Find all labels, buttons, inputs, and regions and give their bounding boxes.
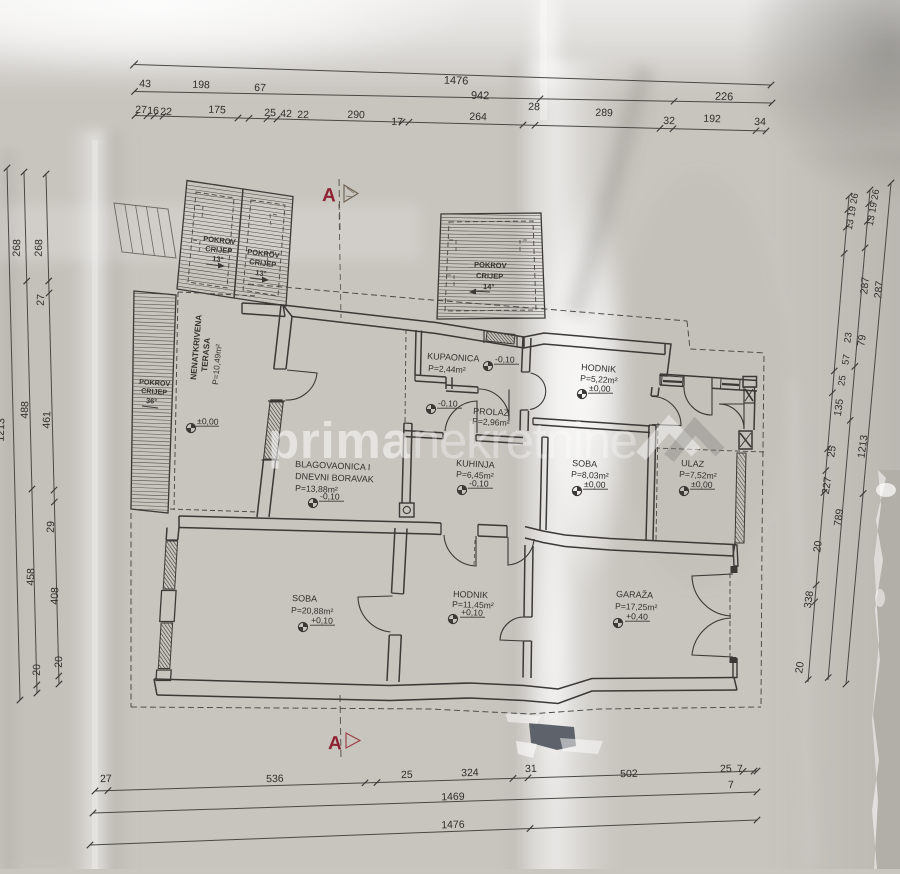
svg-text:-0,10: -0,10	[438, 398, 458, 409]
svg-text:227: 227	[820, 476, 834, 495]
svg-text:287: 287	[858, 276, 872, 295]
svg-text:287: 287	[872, 280, 886, 299]
svg-text:1469: 1469	[441, 791, 465, 804]
svg-text:7: 7	[737, 763, 743, 775]
svg-text:43: 43	[139, 78, 151, 90]
svg-text:1476: 1476	[444, 75, 469, 88]
svg-text:135: 135	[832, 398, 846, 417]
svg-text:324: 324	[461, 767, 479, 780]
svg-text:175: 175	[208, 104, 226, 117]
svg-text:7: 7	[728, 779, 734, 791]
svg-text:±0,00: ±0,00	[584, 479, 606, 490]
svg-text:ULAZ: ULAZ	[681, 458, 705, 469]
svg-text:27: 27	[100, 773, 112, 785]
svg-text:192: 192	[703, 113, 721, 126]
svg-text:P=2,44m²: P=2,44m²	[428, 363, 466, 375]
svg-text:57: 57	[840, 354, 852, 366]
svg-text:±0,00: ±0,00	[691, 479, 713, 490]
svg-text:20: 20	[811, 540, 825, 553]
svg-text:289: 289	[595, 107, 613, 120]
svg-text:25: 25	[264, 107, 276, 119]
svg-text:-0,10: -0,10	[495, 354, 515, 365]
svg-text:SOBA: SOBA	[292, 593, 317, 604]
svg-text:1476: 1476	[441, 819, 465, 832]
svg-text:408: 408	[49, 587, 62, 605]
svg-text:+0,40: +0,40	[626, 611, 648, 622]
svg-text:25: 25	[825, 445, 839, 458]
svg-text:14°: 14°	[483, 282, 495, 291]
svg-text:13°: 13°	[212, 254, 224, 264]
svg-text:-0,10: -0,10	[320, 491, 340, 502]
svg-text:31: 31	[525, 763, 537, 775]
svg-text:13°: 13°	[255, 268, 267, 278]
svg-text:942: 942	[471, 90, 490, 103]
svg-text:789: 789	[832, 508, 846, 527]
svg-text:502: 502	[620, 768, 638, 781]
svg-text:338: 338	[802, 590, 816, 609]
svg-text:+0,10: +0,10	[461, 607, 483, 618]
svg-text:+0,10: +0,10	[311, 615, 333, 626]
svg-text:25: 25	[401, 769, 413, 781]
svg-text:42: 42	[280, 108, 292, 120]
svg-text:16: 16	[147, 105, 159, 117]
svg-text:GARAŽA: GARAŽA	[616, 589, 653, 600]
svg-text:28: 28	[528, 101, 540, 113]
svg-text:36°: 36°	[146, 396, 158, 406]
svg-text:nekretnine: nekretnine	[412, 412, 638, 469]
svg-text:CRIJEP: CRIJEP	[141, 386, 168, 397]
svg-text:A: A	[322, 185, 337, 206]
svg-text:226: 226	[715, 91, 734, 104]
svg-text:290: 290	[347, 109, 365, 122]
svg-text:20: 20	[793, 661, 807, 674]
svg-text:25: 25	[720, 763, 732, 775]
svg-text:CRIJEP: CRIJEP	[476, 271, 503, 281]
svg-text:536: 536	[266, 773, 284, 786]
svg-text:20: 20	[31, 664, 43, 676]
svg-text:488: 488	[19, 401, 32, 419]
svg-text:1213: 1213	[0, 418, 7, 442]
svg-text:17: 17	[391, 116, 403, 128]
svg-text:268: 268	[11, 239, 24, 257]
svg-text:32: 32	[663, 115, 675, 127]
svg-text:67: 67	[254, 82, 266, 94]
svg-text:198: 198	[192, 79, 210, 92]
svg-text:23: 23	[842, 332, 854, 344]
svg-text:±0,00: ±0,00	[589, 383, 611, 394]
svg-text:458: 458	[25, 568, 38, 586]
svg-text:prima: prima	[268, 412, 411, 469]
svg-text:22: 22	[160, 106, 172, 118]
svg-text:-0,10: -0,10	[469, 478, 489, 489]
svg-text:79: 79	[855, 334, 869, 347]
svg-text:20: 20	[53, 656, 65, 668]
svg-text:POKROV: POKROV	[474, 260, 507, 270]
svg-text:29: 29	[45, 521, 57, 533]
svg-text:268: 268	[33, 239, 46, 257]
svg-text:461: 461	[41, 411, 54, 429]
svg-text:264: 264	[469, 111, 487, 124]
svg-text:34: 34	[754, 116, 766, 128]
svg-text:25: 25	[836, 375, 848, 387]
svg-text:±0,00: ±0,00	[197, 416, 219, 427]
svg-text:27: 27	[35, 294, 47, 306]
svg-text:22: 22	[297, 109, 309, 121]
svg-text:27: 27	[135, 104, 147, 116]
